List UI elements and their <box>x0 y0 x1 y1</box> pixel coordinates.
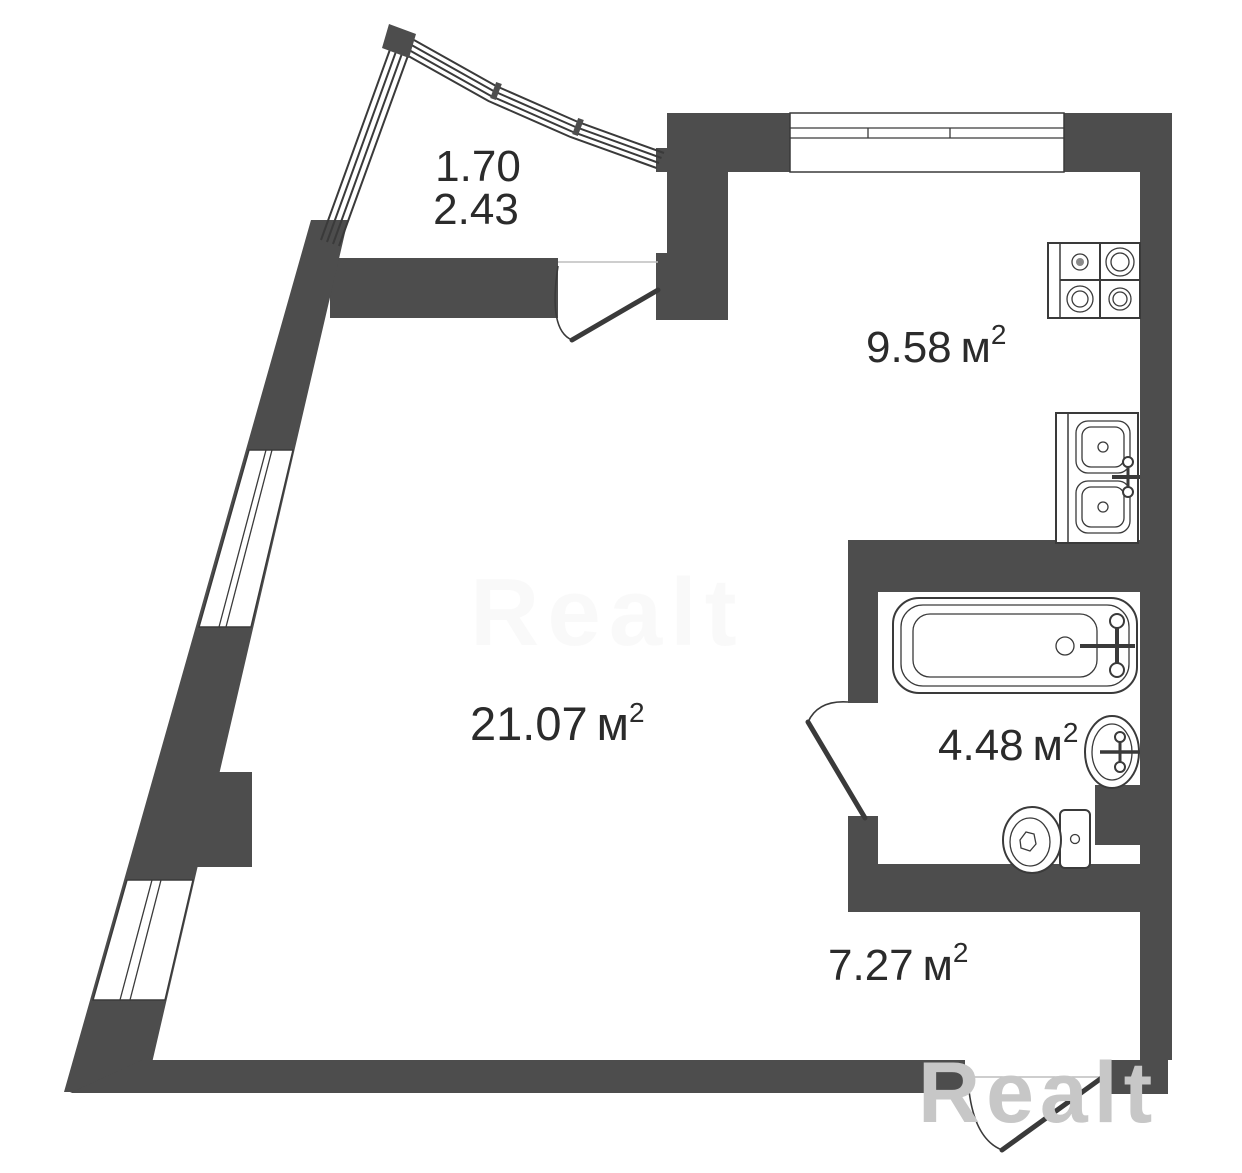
bathroom-bottom-wall <box>848 864 1140 912</box>
sloped-wall-window-upper <box>199 450 293 627</box>
bottom-wall <box>70 1060 965 1093</box>
bathroom-right-wall-stub <box>1095 785 1140 845</box>
kitchen-sink-icon <box>1056 413 1140 543</box>
kitchen-window <box>790 113 1064 172</box>
bathroom-area-label: 4.48м2 <box>938 717 1078 770</box>
kitchen-living-pillar <box>656 113 728 320</box>
floor-plan-drawing: 1.70 2.43 9.58м2 21.07м2 4.48м2 7.27м2 R… <box>0 0 1242 1173</box>
watermark-logo: Realt <box>918 1045 1158 1141</box>
balcony-dimension-1: 1.70 <box>435 142 521 191</box>
living-area-label: 21.07м2 <box>470 697 645 750</box>
top-right-corner-wall <box>1064 113 1172 172</box>
right-wall <box>1140 172 1172 1060</box>
washbasin-icon <box>1085 716 1140 788</box>
hallway-area-label: 7.27м2 <box>828 937 968 990</box>
stove-icon <box>1048 243 1140 318</box>
bathtub-icon <box>893 598 1137 693</box>
floor-plan: 1.70 2.43 9.58м2 21.07м2 4.48м2 7.27м2 R… <box>0 0 1242 1173</box>
left-wall-pier <box>193 772 252 867</box>
balcony-dimension-2: 2.43 <box>433 185 519 234</box>
watermark-center: Realt <box>470 559 745 666</box>
toilet-icon <box>1003 807 1090 873</box>
living-balcony-wall <box>330 258 558 318</box>
kitchen-area-label: 9.58м2 <box>866 319 1006 372</box>
bathroom-door <box>808 702 865 818</box>
bathroom-top-wall <box>848 540 1140 592</box>
balcony-door <box>555 262 658 340</box>
balcony-glazing-left <box>321 44 410 246</box>
balcony-corner-post <box>382 24 416 58</box>
bathroom-left-wall-upper <box>848 540 878 703</box>
